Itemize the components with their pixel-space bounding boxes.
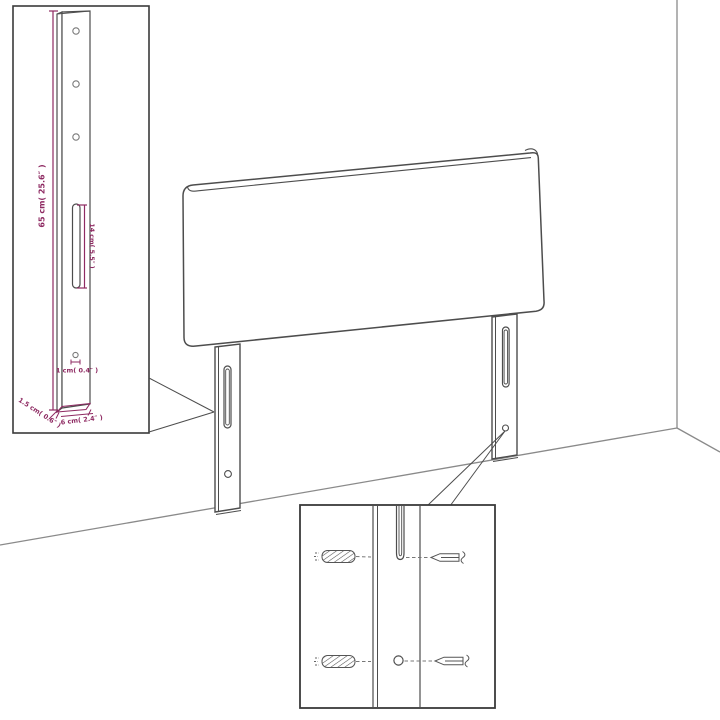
left-leg	[215, 344, 241, 515]
fixing-inset-callout	[427, 431, 505, 506]
panel-face	[183, 153, 544, 346]
headboard-panel	[183, 149, 544, 346]
wall-plug-bottom	[322, 656, 355, 668]
fixing-detail-inset-frame	[300, 505, 495, 708]
inset-leg-bottom-hole	[73, 352, 78, 357]
inset-leg-hole-2	[73, 81, 79, 87]
leg-detail-inset: 65 cm( 25.6″ ) 14 cm( 5.5″ ) 1 cm( 0.4″ …	[13, 6, 149, 433]
inset-leg-slot	[73, 204, 81, 288]
callout-line	[427, 431, 505, 506]
floor-line-right	[677, 428, 720, 452]
left-leg-hole	[225, 471, 232, 478]
fixing-detail-inset	[300, 505, 495, 708]
diagram-stage: 65 cm( 25.6″ ) 14 cm( 5.5″ ) 1 cm( 0.4″ …	[0, 0, 720, 720]
headboard-legs	[215, 314, 518, 515]
callout-line	[149, 412, 214, 432]
right-leg-slot-inner	[504, 330, 507, 384]
label-slot-length: 14 cm( 5.5″ )	[88, 223, 95, 268]
callout-line	[450, 431, 505, 506]
inset-leg-hole-3	[73, 134, 79, 140]
inset-leg-side-face	[57, 12, 62, 412]
inset-leg-hole-1	[73, 28, 79, 34]
label-leg-height: 65 cm( 25.6″ )	[38, 164, 47, 227]
callout-line	[149, 378, 214, 412]
left-leg-slot-inner	[226, 369, 230, 425]
label-hole-diameter: 1 cm( 0.4″ )	[56, 367, 98, 375]
right-leg-hole	[503, 425, 509, 431]
dash-plug-to-slot	[356, 557, 371, 558]
leg-inset-callout	[149, 378, 214, 432]
headboard-assembly-diagram: 65 cm( 25.6″ ) 14 cm( 5.5″ ) 1 cm( 0.4″ …	[0, 0, 720, 720]
wall-plug-top	[322, 551, 355, 563]
